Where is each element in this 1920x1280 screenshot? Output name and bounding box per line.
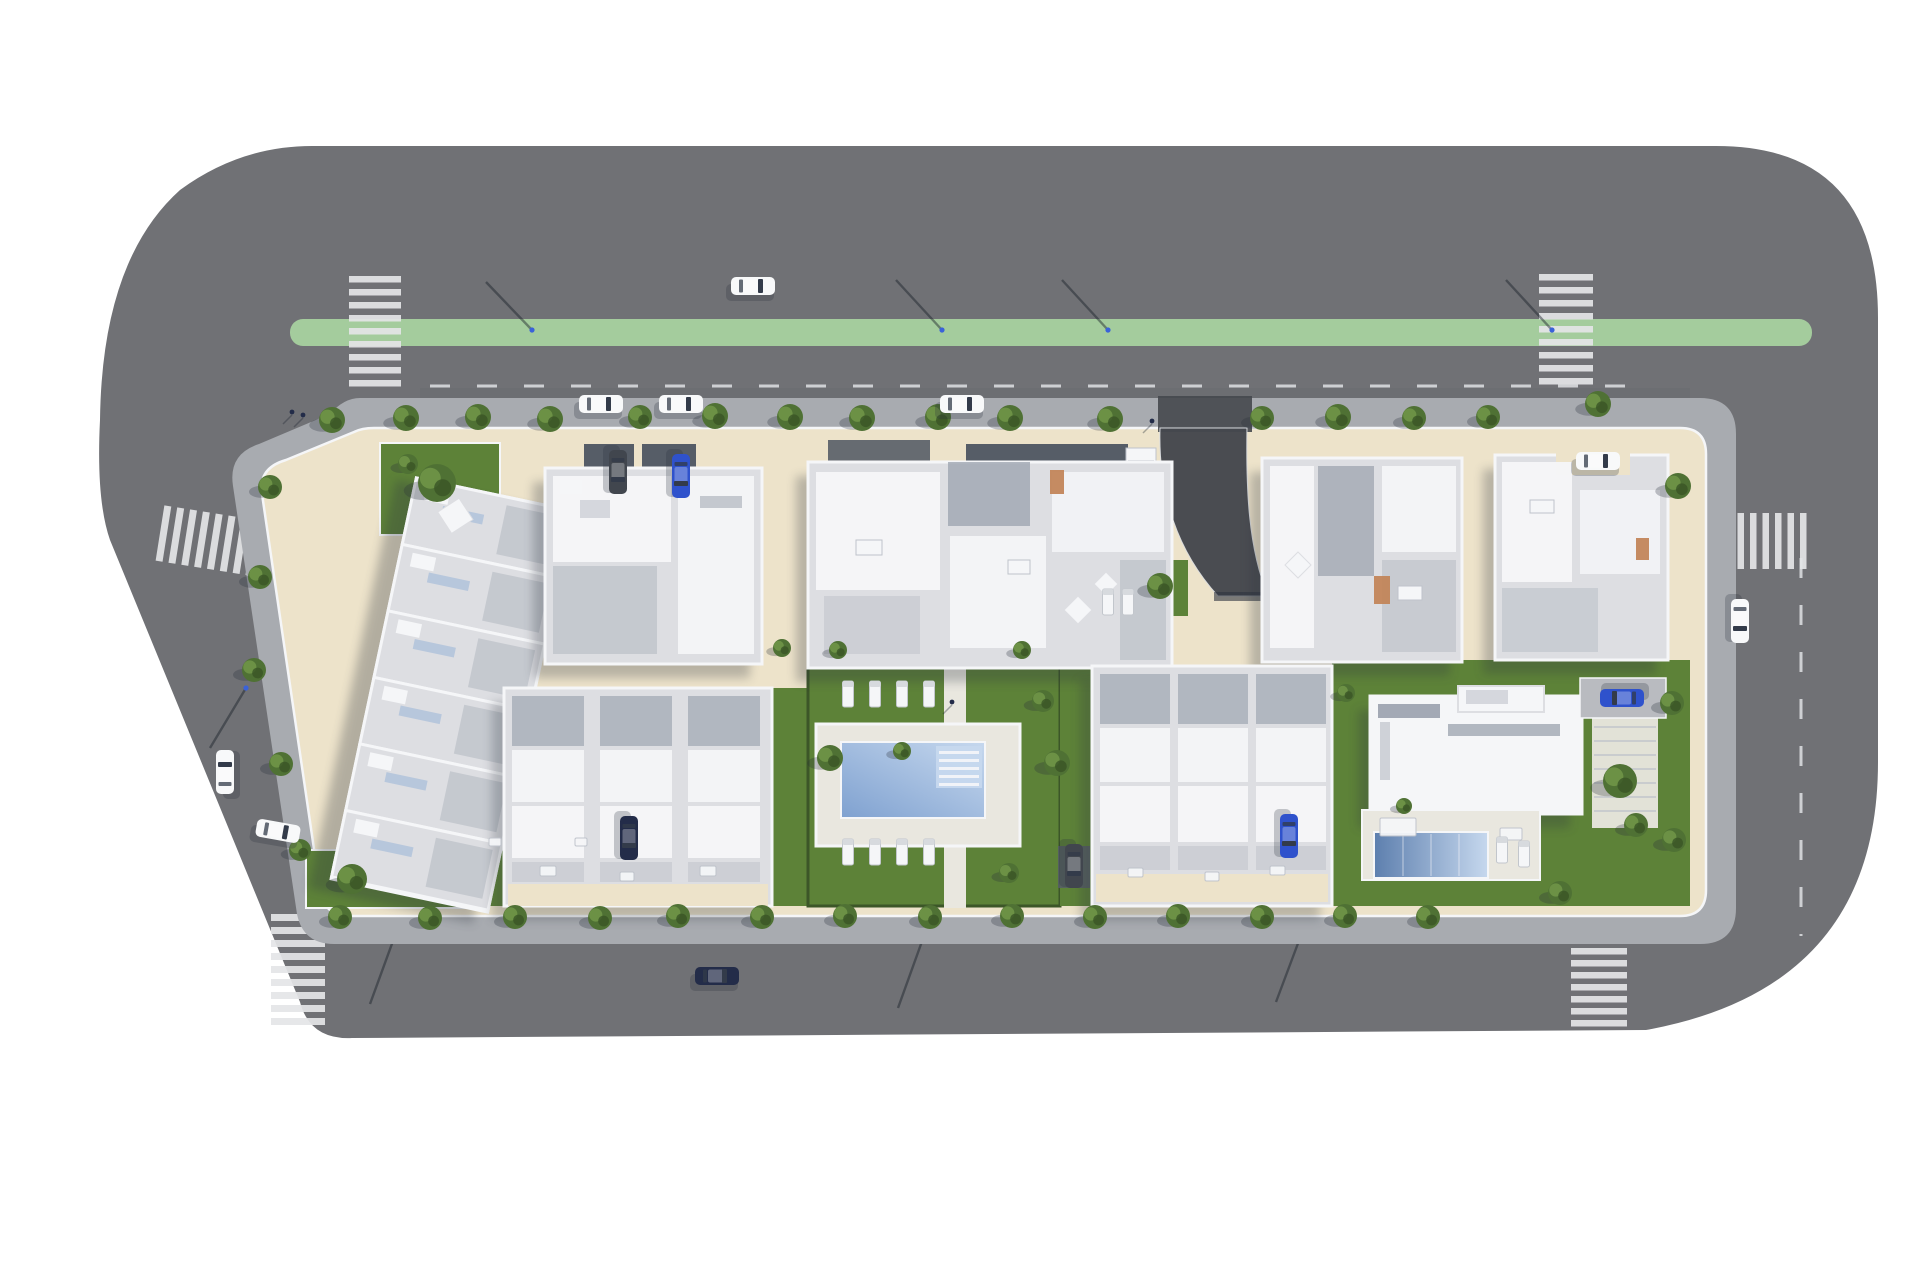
apartment-building-a	[533, 468, 762, 678]
apartment-building-central	[796, 462, 1172, 682]
townhouse-block-southeast	[1080, 666, 1332, 920]
apartment-building-right-1	[1250, 458, 1462, 676]
apartment-building-right-2	[1483, 449, 1668, 674]
site-plan-render	[0, 0, 1920, 1280]
communal-pool	[816, 724, 1020, 846]
aerial-render-canvas	[0, 0, 1920, 1280]
townhouse-block-southwest	[492, 688, 772, 920]
